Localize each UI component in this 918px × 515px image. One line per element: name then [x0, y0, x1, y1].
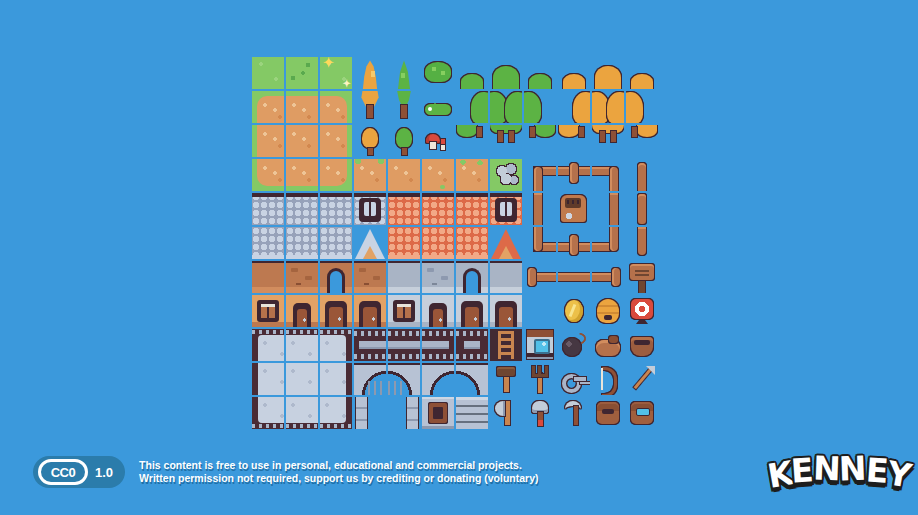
tile-dirt-l — [252, 125, 284, 157]
tile-post-mid — [626, 193, 658, 225]
tile-dirt-r — [320, 125, 352, 157]
tile-pouch — [592, 329, 624, 361]
tile-fo-bl — [558, 125, 590, 157]
tile-sledge — [524, 397, 556, 429]
tile-roof-gray2 — [320, 227, 352, 259]
tile-bridge-s — [456, 329, 488, 361]
tile-grass-sparkle — [320, 57, 352, 89]
tile-coin — [558, 295, 590, 327]
tile-sign — [626, 261, 658, 293]
kenney-logo-letter: N — [812, 448, 840, 488]
license-text: This content is free to use in personal,… — [139, 459, 538, 485]
tile-fence-tt — [558, 159, 590, 191]
tile-fo-mm — [592, 91, 624, 123]
tile-wall-gray-door2 — [456, 295, 488, 327]
tile-fg-tm — [490, 57, 522, 89]
tile-wall-tan-win — [252, 295, 284, 327]
tile-tree-pine-bot — [388, 91, 420, 123]
tile-wall-tan-door2 — [320, 295, 352, 327]
tile-wall-tan-br — [286, 261, 318, 293]
tile-target — [626, 295, 658, 327]
tile-plat-r — [320, 363, 352, 395]
tile-roof-red — [456, 193, 488, 225]
tile-dirt-br — [320, 159, 352, 191]
tile-dirt-c — [286, 125, 318, 157]
tile-fence-bt — [558, 227, 590, 259]
tile-plat-l — [252, 363, 284, 395]
tile-archleg-l — [354, 397, 386, 429]
tile-fg-br — [524, 125, 556, 157]
tile-basket — [626, 329, 658, 361]
license-text-line2: Written permission not required, support… — [139, 472, 538, 485]
tile-roof-gray2 — [286, 227, 318, 259]
tile-dirt-tuft — [422, 159, 454, 191]
tile-mushrooms — [422, 125, 454, 157]
tile-roof-gray — [286, 193, 318, 225]
tile-wall-gray-door — [422, 295, 454, 327]
kenney-logo: KENNEY — [766, 440, 911, 500]
tile-fence-tr — [592, 159, 624, 191]
kenney-logo-letter: E — [790, 450, 814, 490]
tile-bow — [592, 363, 624, 395]
tile-fg-mr — [524, 91, 556, 123]
tile-pitchfork — [524, 363, 556, 395]
tile-hammer — [490, 363, 522, 395]
tile-roof-gray — [252, 193, 284, 225]
tile-post-bot — [626, 227, 658, 259]
tile-wall-tan-door2 — [354, 295, 386, 327]
tile-roof-red2 — [422, 227, 454, 259]
cc0-mark-label: CC0 — [51, 465, 76, 480]
tile-fg-bm — [490, 125, 522, 157]
tile-plat-c — [286, 363, 318, 395]
tile-bridge-r — [422, 329, 454, 361]
tile-plat-tr — [320, 329, 352, 361]
tile-fence-end-l — [524, 261, 556, 293]
tile-tree-orange-sm — [354, 125, 386, 157]
tile-post-top — [626, 159, 658, 191]
tile-fence-vr — [592, 193, 624, 225]
tile-beehive — [592, 295, 624, 327]
tilesheet-grid — [252, 57, 658, 429]
tile-bridge-l — [354, 329, 386, 361]
tile-fence-end-r — [592, 261, 624, 293]
tile-wall-gray-win — [388, 295, 420, 327]
tile-scythe — [558, 397, 590, 429]
tile-fo-mr — [626, 91, 658, 123]
tile-key — [558, 363, 590, 395]
tile-roof-gray2 — [252, 227, 284, 259]
tile-fence-tl — [524, 159, 556, 191]
tile-fg-tl — [456, 57, 488, 89]
tile-well — [524, 329, 556, 361]
tile-archleg-r — [388, 397, 420, 429]
tile-plat-tl — [252, 329, 284, 361]
tile-tree-pine-sm — [388, 125, 420, 157]
tile-roof-red — [388, 193, 420, 225]
tile-roof-red-win — [490, 193, 522, 225]
tile-fg-ml — [456, 91, 488, 123]
tile-bush — [422, 57, 454, 89]
tile-roof-gray-peak — [354, 227, 386, 259]
license-badge: CC0 1.0 — [33, 456, 125, 488]
tile-wall-gray-door2 — [490, 295, 522, 327]
tile-plat-bl — [252, 397, 284, 429]
tile-grass — [252, 57, 284, 89]
tile-fg-bl — [456, 125, 488, 157]
tile-bomb — [558, 329, 590, 361]
tile-fo-bm — [592, 125, 624, 157]
cc0-mark: CC0 — [38, 459, 88, 485]
tile-plat-b — [286, 397, 318, 429]
tile-wall-tan-open — [320, 261, 352, 293]
tile-fence-bl — [524, 227, 556, 259]
tile-fg-tr — [524, 57, 556, 89]
tile-wall-gray-br — [422, 261, 454, 293]
promo-scene: { "scene": { "background_color": "#3b99d… — [0, 0, 918, 515]
tile-fo-tm — [592, 57, 624, 89]
tile-arch2-l — [422, 363, 454, 395]
tile-caterpillar — [422, 91, 454, 123]
tile-wall-gray — [388, 261, 420, 293]
tile-roof-red2 — [456, 227, 488, 259]
tile-arch1-r — [388, 363, 420, 395]
tile-shed — [558, 193, 590, 225]
tile-roof-red-peak — [490, 227, 522, 259]
tile-plat-t — [286, 329, 318, 361]
tile-bridge-m — [388, 329, 420, 361]
tile-plat-br — [320, 397, 352, 429]
tile-arch1-l — [354, 363, 386, 395]
tile-tree-orange-top — [354, 57, 386, 89]
kenney-logo-letter: N — [839, 448, 867, 488]
tile-fo-ml — [558, 91, 590, 123]
tile-wall-tan-br — [354, 261, 386, 293]
tile-tree-pine-top — [388, 57, 420, 89]
tile-grass-dark — [286, 57, 318, 89]
tile-dirt-bl — [252, 159, 284, 191]
tile-arch2-r — [456, 363, 488, 395]
tile-fg-mm — [490, 91, 522, 123]
license-footer: CC0 1.0 This content is free to use in p… — [33, 456, 539, 488]
tile-fo-tr — [626, 57, 658, 89]
tile-roof-gray-win — [354, 193, 386, 225]
tile-dirt-tr — [320, 91, 352, 123]
tile-dirt-plain — [388, 159, 420, 191]
tile-roof-red2 — [388, 227, 420, 259]
tile-wall-gray — [490, 261, 522, 293]
tile-dirt-t — [286, 91, 318, 123]
tile-fo-tl — [558, 57, 590, 89]
tile-stones-grass — [490, 159, 522, 191]
tile-fence-rail — [558, 261, 590, 293]
tile-satchel-open — [626, 397, 658, 429]
tile-fence-vl — [524, 193, 556, 225]
license-text-line1: This content is free to use in personal,… — [139, 459, 538, 472]
tile-wall-gray-open — [456, 261, 488, 293]
tile-roof-gray — [320, 193, 352, 225]
tile-fence-br — [592, 227, 624, 259]
tile-dirt-b — [286, 159, 318, 191]
tile-ladder — [490, 329, 522, 361]
tile-wall-tan — [252, 261, 284, 293]
tile-stone-win — [422, 397, 454, 429]
tile-satchel — [592, 397, 624, 429]
tile-tree-orange-bot — [354, 91, 386, 123]
tile-dirt-tl — [252, 91, 284, 123]
tile-fo-br — [626, 125, 658, 157]
tile-stone-brick — [456, 397, 488, 429]
tile-dirt-tufts — [456, 159, 488, 191]
tile-arrow — [626, 363, 658, 395]
license-version: 1.0 — [95, 465, 113, 480]
tile-wall-tan-door — [286, 295, 318, 327]
tile-dirt-grass-top — [354, 159, 386, 191]
tile-roof-red — [422, 193, 454, 225]
tile-axe — [490, 397, 522, 429]
